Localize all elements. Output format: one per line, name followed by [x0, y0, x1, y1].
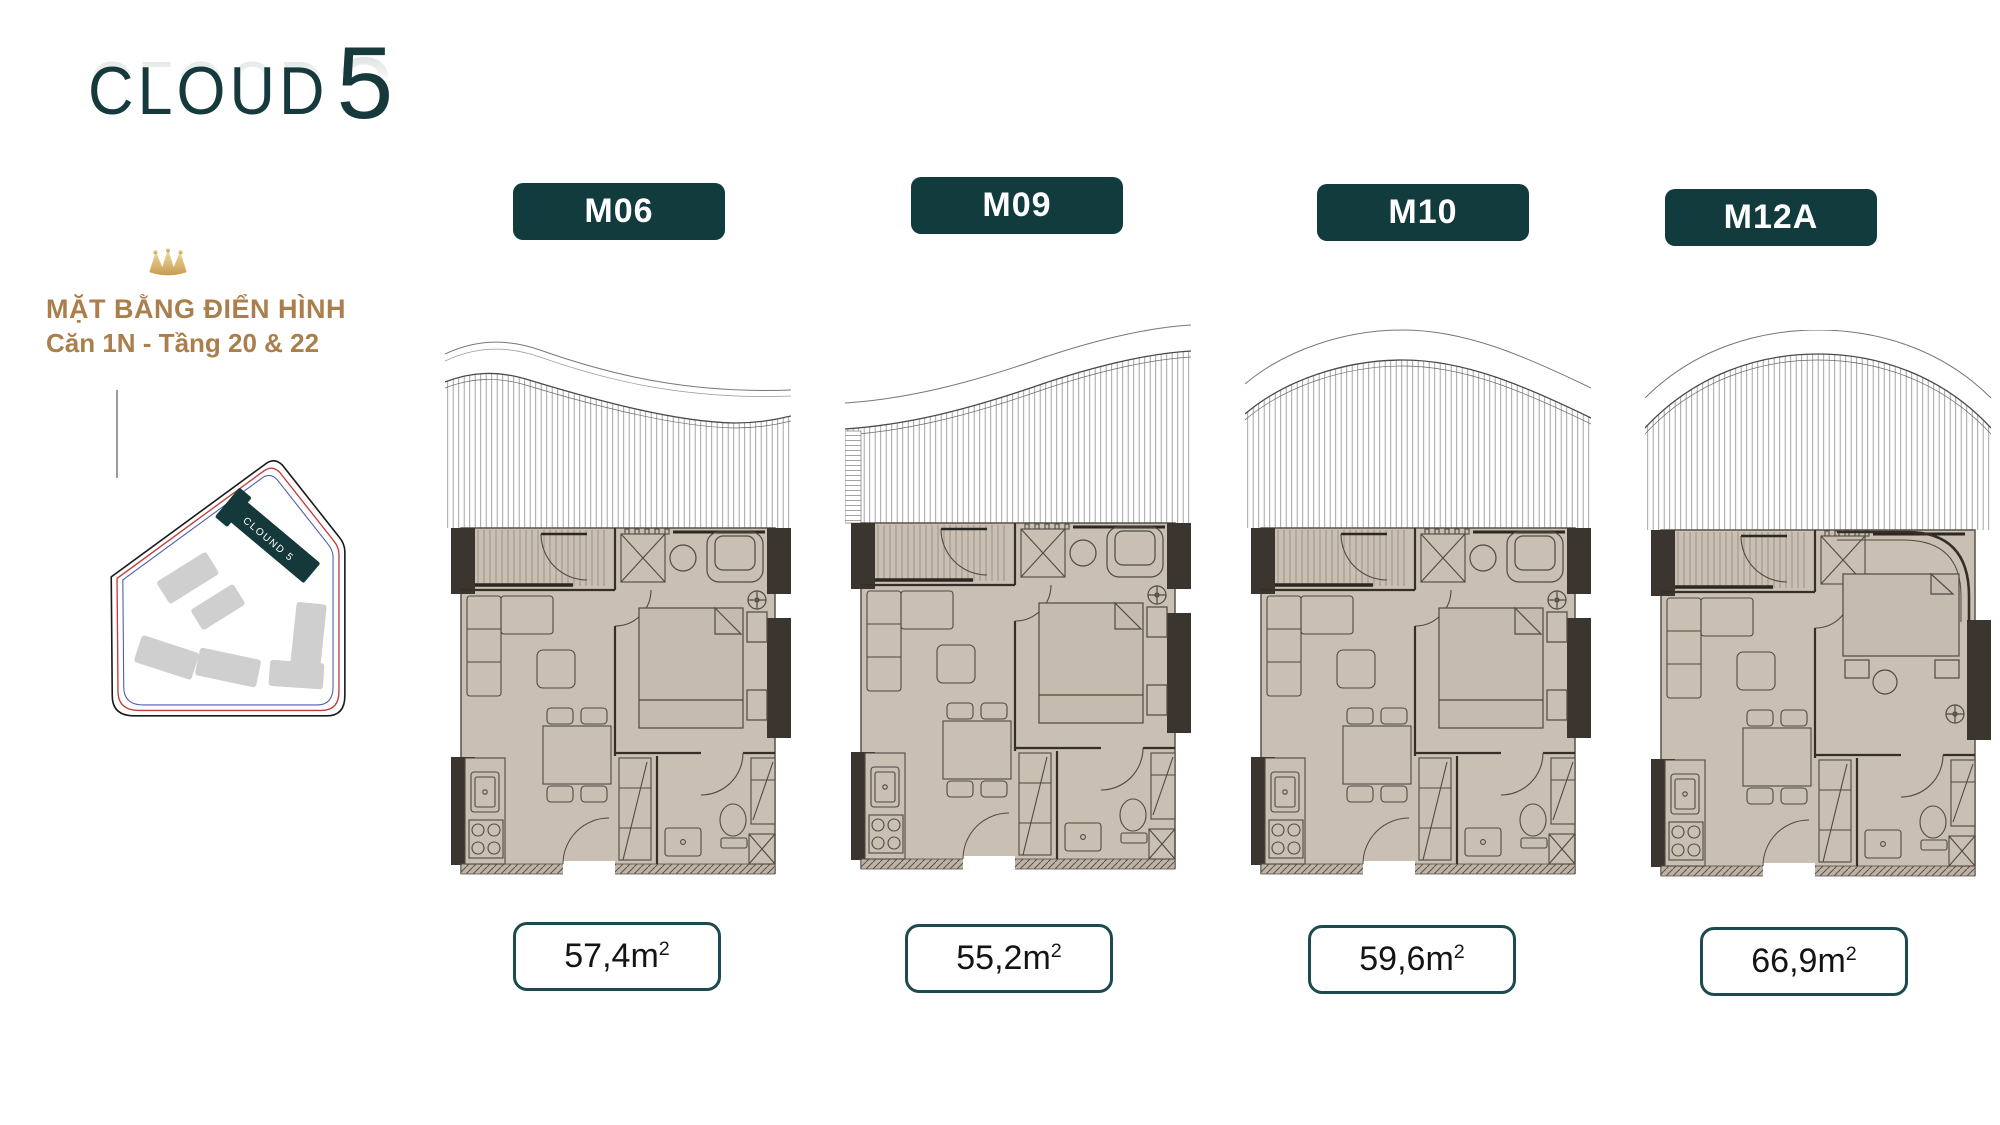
- area-label-m10: 59,6m2: [1308, 925, 1516, 994]
- logo-reflection: CLOUD 5: [88, 42, 388, 118]
- page-title-line2: Căn 1N - Tầng 20 & 22: [46, 328, 319, 359]
- unit-badge-m10: M10: [1317, 184, 1529, 241]
- area-sup-text: 2: [659, 938, 670, 961]
- area-value-text: 55,2m: [956, 939, 1051, 978]
- unit-code-text: M06: [584, 192, 653, 231]
- floor-plan-m09: [845, 323, 1191, 883]
- page-title-line1: MẶT BẰNG ĐIỂN HÌNH: [46, 294, 346, 325]
- area-value-text: 66,9m: [1751, 942, 1846, 981]
- brand-logo: CLOUD 5 CLOUD 5: [88, 58, 388, 194]
- site-building-cloud5: CLOUND 5: [215, 487, 324, 588]
- unit-code-text: M12A: [1724, 198, 1819, 237]
- unit-code-text: M09: [982, 186, 1051, 225]
- area-sup-text: 2: [1846, 943, 1857, 966]
- unit-code-text: M10: [1388, 193, 1457, 232]
- unit-badge-m09: M09: [911, 177, 1123, 234]
- area-label-m09: 55,2m2: [905, 924, 1113, 993]
- unit-badge-m06: M06: [513, 183, 725, 240]
- area-value-text: 57,4m: [564, 937, 659, 976]
- area-sup-text: 2: [1454, 941, 1465, 964]
- floor-plan-m12a: [1645, 330, 1991, 890]
- unit-badge-m12a: M12A: [1665, 189, 1877, 246]
- crown-icon: [146, 246, 190, 282]
- site-plan-map: CLOUND 5: [96, 446, 348, 738]
- floor-plan-m10: [1245, 328, 1591, 888]
- area-value-text: 59,6m: [1359, 940, 1454, 979]
- floor-plan-m06: [445, 328, 791, 888]
- area-label-m06: 57,4m2: [513, 922, 721, 991]
- area-label-m12a: 66,9m2: [1700, 927, 1908, 996]
- area-sup-text: 2: [1051, 940, 1062, 963]
